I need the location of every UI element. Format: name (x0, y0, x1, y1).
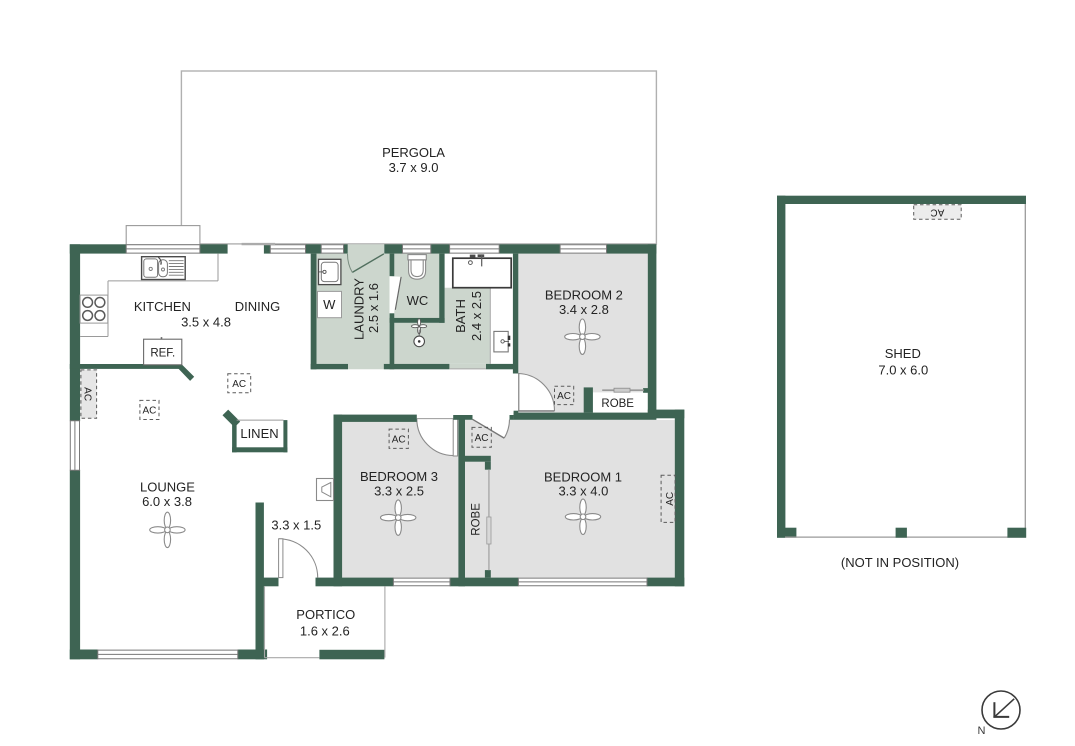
svg-text:AC: AC (557, 391, 571, 402)
svg-text:AC: AC (665, 492, 676, 506)
svg-text:BEDROOM 3: BEDROOM 3 (360, 469, 438, 484)
svg-text:2.4 x 2.5: 2.4 x 2.5 (469, 291, 484, 341)
svg-text:AC: AC (82, 387, 93, 401)
svg-text:6.0 x 3.8: 6.0 x 3.8 (142, 494, 192, 509)
svg-text:SHED: SHED (885, 346, 921, 361)
svg-text:3.5 x 4.8: 3.5 x 4.8 (181, 314, 231, 329)
svg-text:DINING: DINING (235, 299, 281, 314)
svg-text:LAUNDRY: LAUNDRY (352, 278, 367, 340)
svg-text:3.3 x 4.0: 3.3 x 4.0 (558, 484, 608, 499)
svg-text:W: W (323, 297, 336, 312)
svg-text:(NOT IN POSITION): (NOT IN POSITION) (841, 555, 959, 570)
svg-text:AC: AC (392, 434, 406, 445)
svg-text:AC: AC (142, 406, 156, 417)
svg-text:AC: AC (475, 433, 489, 444)
svg-text:1.6 x 2.6: 1.6 x 2.6 (300, 624, 350, 639)
svg-text:AC: AC (232, 379, 246, 390)
svg-text:PERGOLA: PERGOLA (382, 145, 445, 160)
svg-text:KITCHEN: KITCHEN (134, 299, 191, 314)
svg-text:LINEN: LINEN (240, 426, 278, 441)
svg-text:BEDROOM 2: BEDROOM 2 (545, 287, 623, 302)
svg-text:LOUNGE: LOUNGE (140, 480, 195, 495)
svg-text:3.7 x 9.0: 3.7 x 9.0 (389, 160, 439, 175)
svg-text:REF.: REF. (150, 347, 175, 359)
svg-text:3.3 x 1.5: 3.3 x 1.5 (271, 518, 321, 533)
svg-text:WC: WC (407, 293, 429, 308)
svg-text:PORTICO: PORTICO (296, 607, 355, 622)
svg-text:ROBE: ROBE (601, 398, 634, 410)
svg-text:BEDROOM 1: BEDROOM 1 (544, 470, 622, 485)
svg-text:AC: AC (930, 206, 944, 217)
svg-text:7.0 x 6.0: 7.0 x 6.0 (878, 363, 928, 378)
svg-text:N: N (978, 725, 986, 737)
svg-text:BATH: BATH (453, 299, 468, 333)
svg-text:3.4 x 2.8: 3.4 x 2.8 (559, 302, 609, 317)
svg-text:3.3 x 2.5: 3.3 x 2.5 (374, 484, 424, 499)
svg-text:2.5 x 1.6: 2.5 x 1.6 (366, 283, 381, 333)
svg-text:ROBE: ROBE (471, 503, 483, 536)
